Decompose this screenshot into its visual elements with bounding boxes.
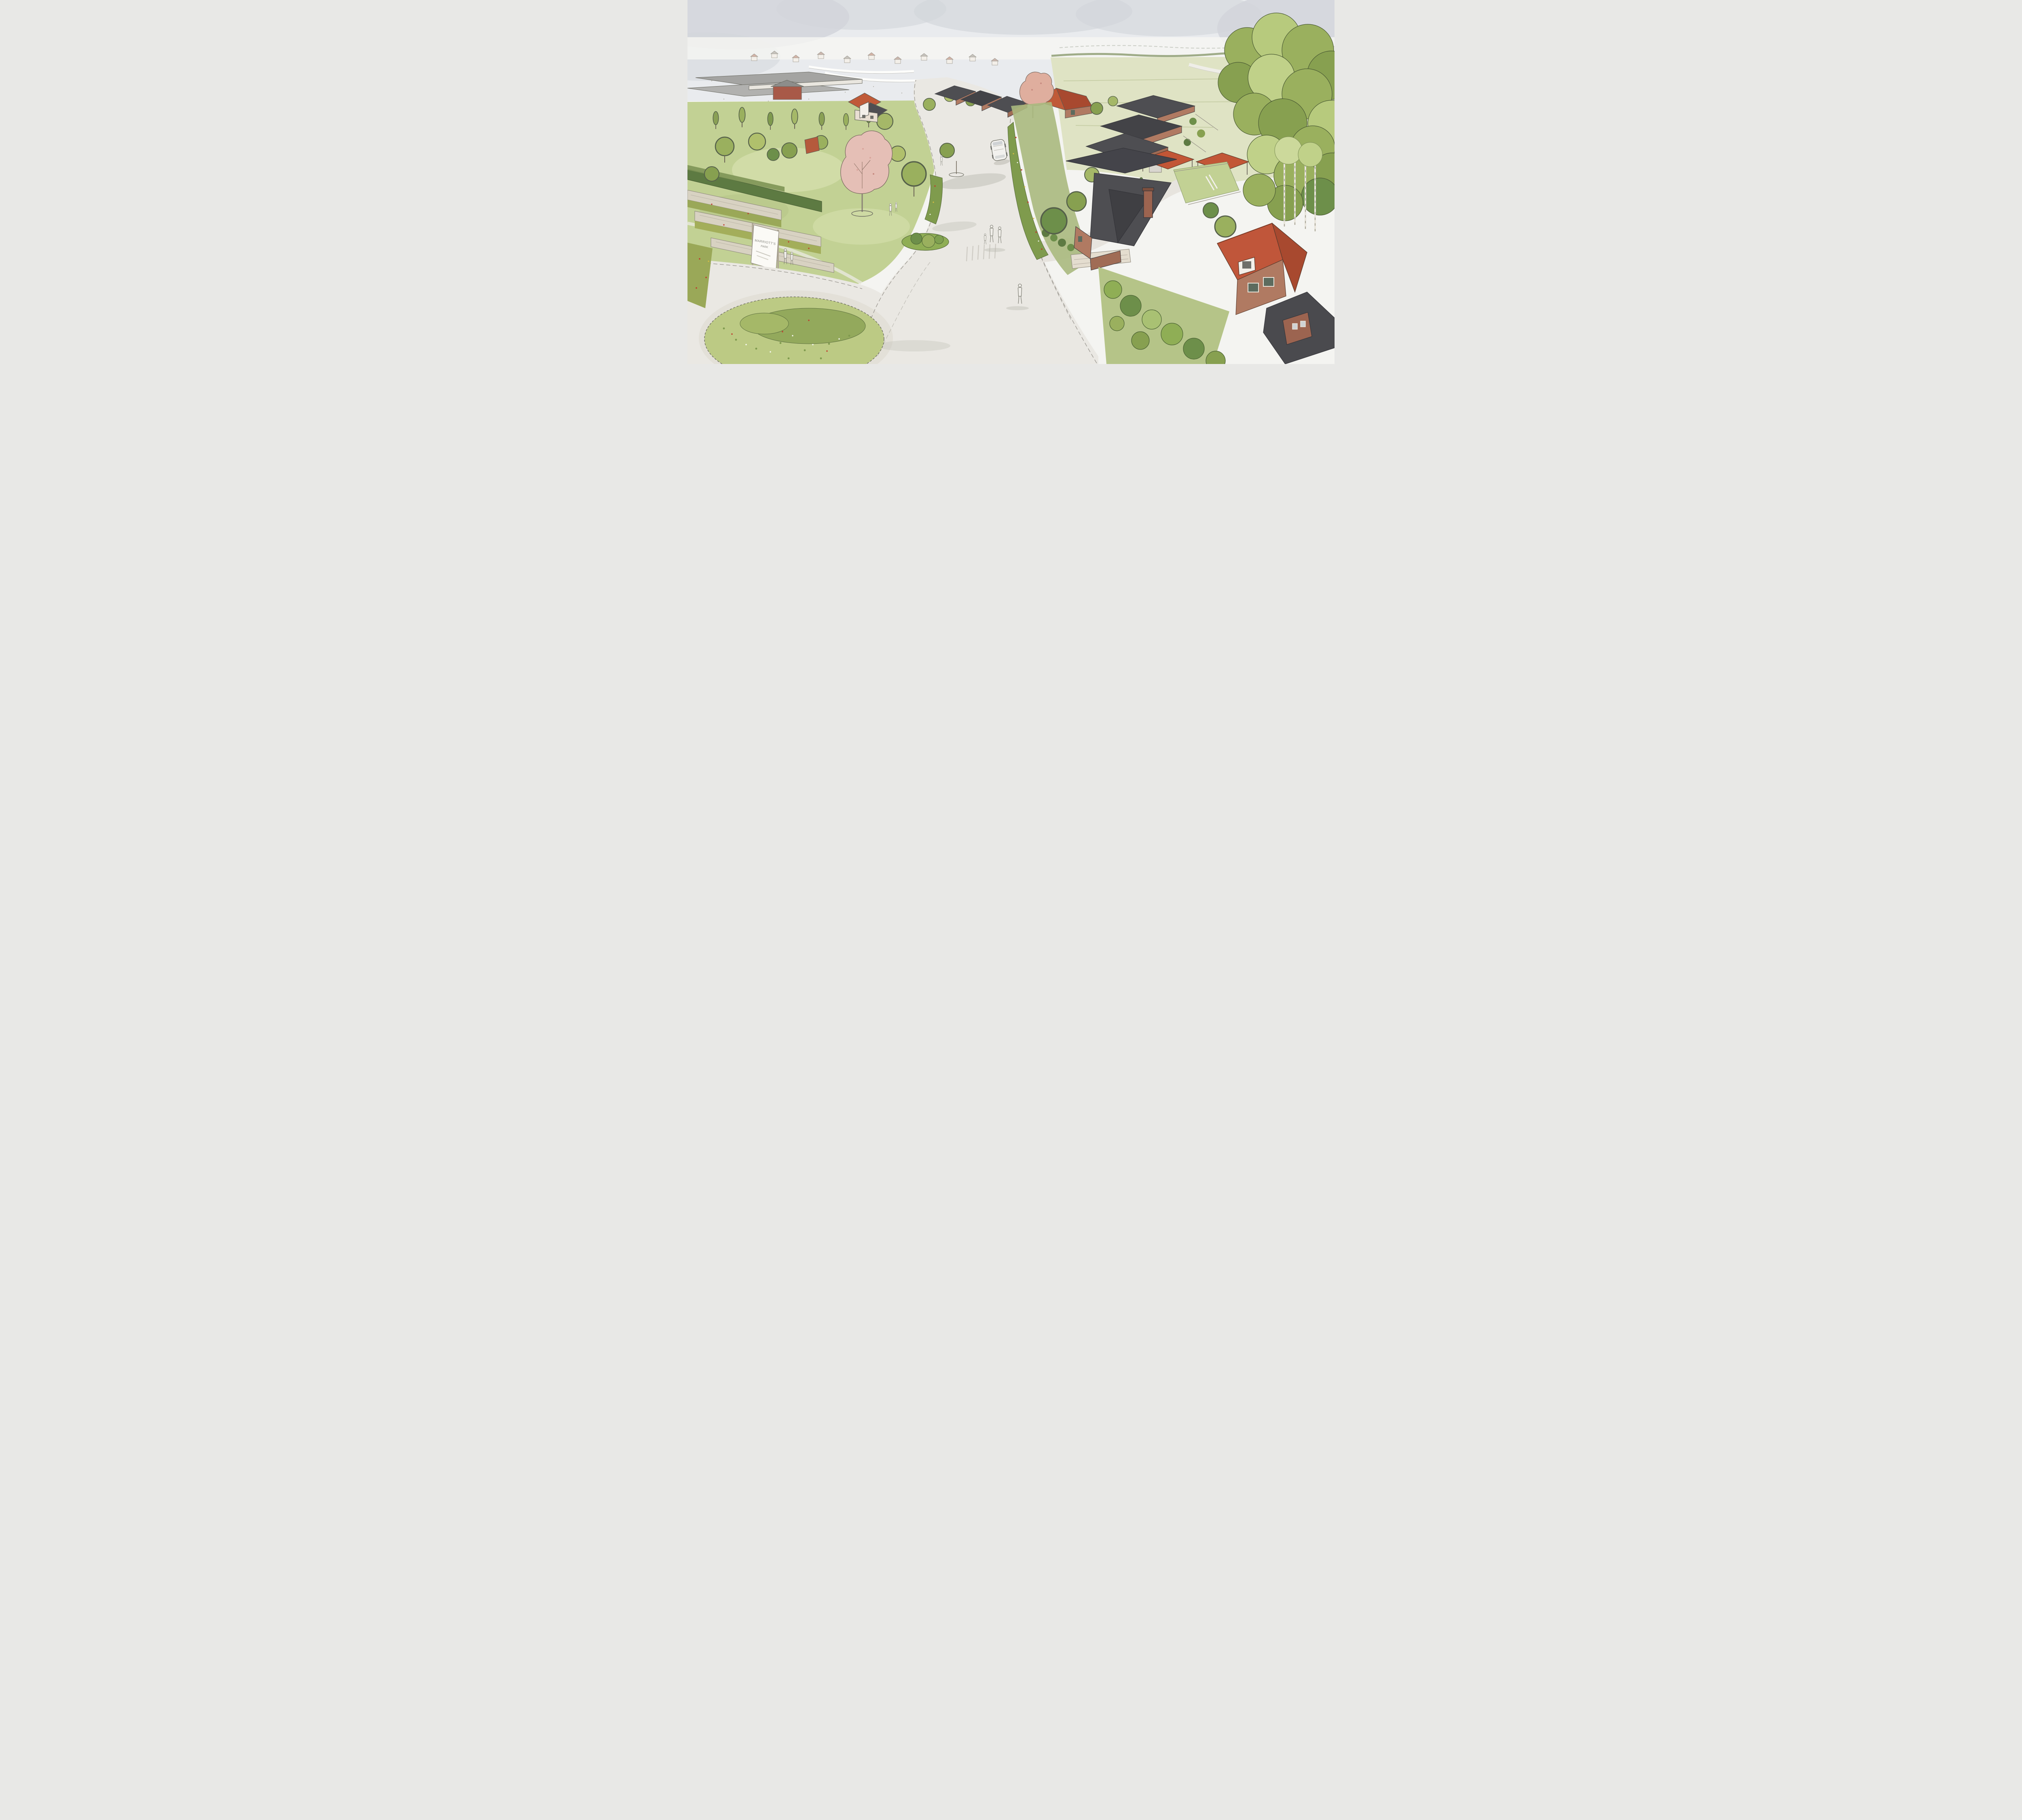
junction-tree-large (1041, 208, 1067, 234)
shrub-island (902, 233, 949, 250)
watercolour-aerial-illustration: MARRIOTT'S PARK (687, 0, 1335, 364)
left-edge-roof (805, 137, 819, 154)
illustration-stage: MARRIOTT'S PARK (687, 0, 1335, 364)
chimney (1144, 190, 1153, 218)
